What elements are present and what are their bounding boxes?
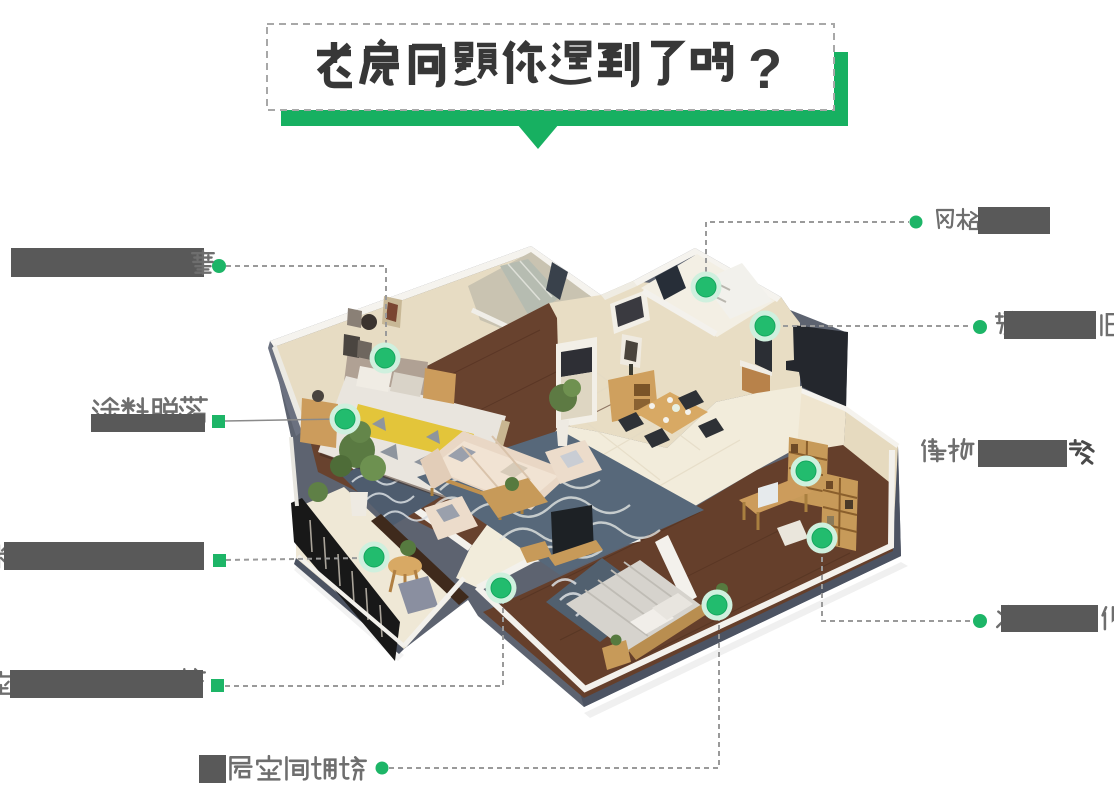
- svg-text:?: ?: [748, 37, 782, 100]
